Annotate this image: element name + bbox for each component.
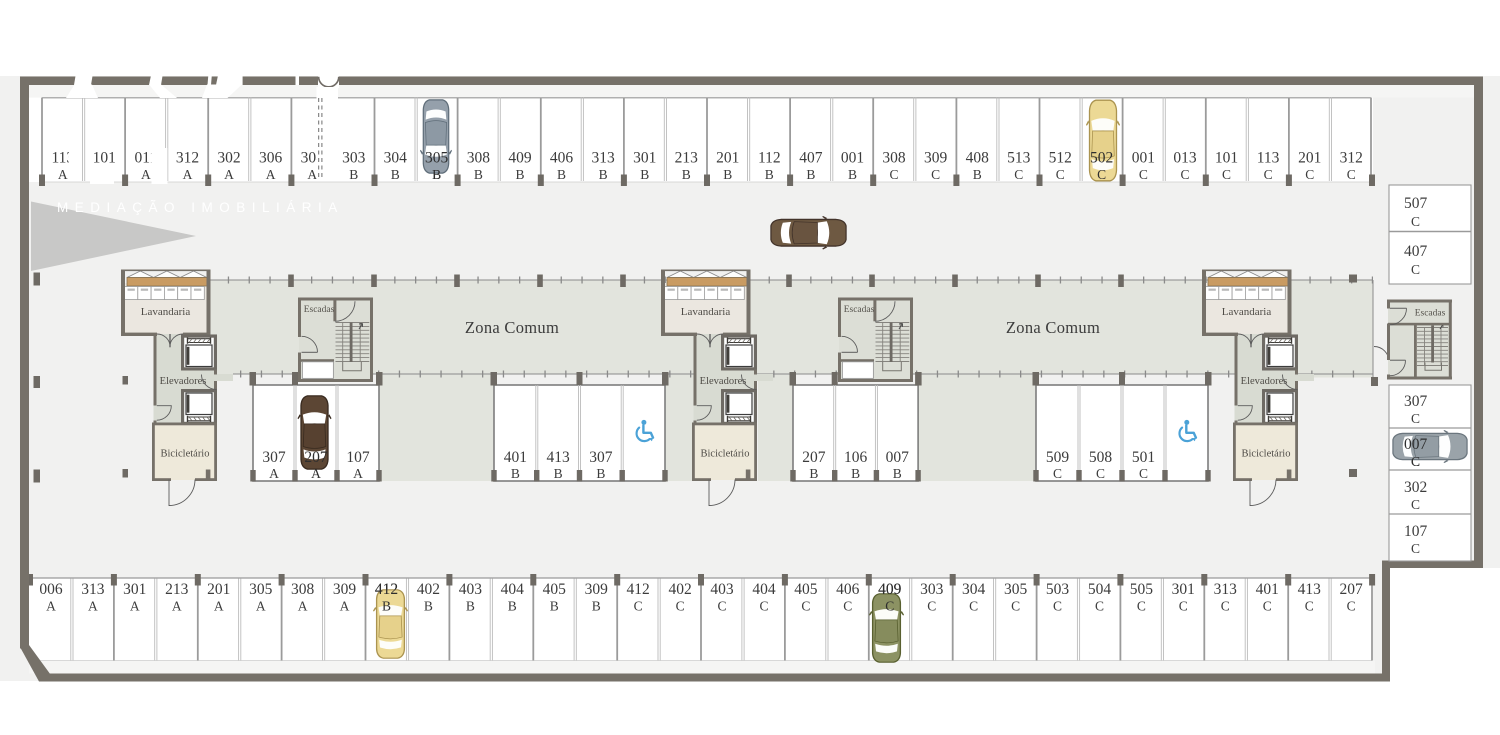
svg-text:Lavandaria: Lavandaria: [141, 306, 191, 318]
svg-text:502: 502: [1090, 150, 1113, 167]
svg-text:106: 106: [844, 449, 868, 466]
svg-text:C: C: [1264, 167, 1273, 182]
svg-text:C: C: [927, 599, 936, 614]
svg-text:B: B: [592, 599, 601, 614]
svg-text:B: B: [973, 167, 982, 182]
svg-text:C: C: [759, 599, 768, 614]
svg-text:A: A: [183, 167, 193, 182]
svg-text:505: 505: [1130, 581, 1154, 598]
svg-text:Elevadores: Elevadores: [700, 376, 747, 387]
svg-text:B: B: [765, 167, 774, 182]
svg-text:C: C: [1411, 497, 1420, 512]
svg-text:C: C: [969, 599, 978, 614]
svg-text:305: 305: [425, 150, 449, 167]
svg-text:509: 509: [1046, 449, 1070, 466]
svg-text:A: A: [311, 466, 321, 481]
svg-text:B: B: [809, 466, 818, 481]
svg-text:A: A: [130, 599, 140, 614]
svg-text:302: 302: [217, 150, 240, 167]
svg-text:308: 308: [467, 150, 491, 167]
svg-text:201: 201: [1298, 150, 1321, 167]
svg-text:301: 301: [633, 150, 656, 167]
svg-text:309: 309: [333, 581, 357, 598]
svg-text:101: 101: [93, 150, 116, 167]
svg-text:C: C: [634, 599, 643, 614]
svg-text:403: 403: [459, 581, 483, 598]
svg-text:213: 213: [165, 581, 189, 598]
svg-text:C: C: [717, 599, 726, 614]
svg-text:501: 501: [1132, 449, 1155, 466]
svg-text:B: B: [848, 167, 857, 182]
svg-text:B: B: [596, 466, 605, 481]
svg-text:B: B: [554, 466, 563, 481]
svg-text:Bicicletário: Bicicletário: [701, 449, 750, 460]
svg-text:C: C: [1053, 466, 1062, 481]
svg-text:406: 406: [836, 581, 860, 598]
svg-text:207: 207: [802, 449, 826, 466]
svg-text:513: 513: [1007, 150, 1031, 167]
svg-text:C: C: [1056, 167, 1065, 182]
svg-text:309: 309: [585, 581, 609, 598]
svg-text:B: B: [511, 466, 520, 481]
svg-text:C: C: [1011, 599, 1020, 614]
svg-text:401: 401: [504, 449, 527, 466]
svg-text:007: 007: [886, 449, 910, 466]
svg-text:C: C: [1053, 599, 1062, 614]
svg-text:B: B: [349, 167, 358, 182]
svg-text:303: 303: [342, 150, 366, 167]
svg-text:C: C: [1305, 167, 1314, 182]
svg-text:307: 307: [1404, 393, 1428, 410]
svg-text:B: B: [515, 167, 524, 182]
svg-text:C: C: [1139, 466, 1148, 481]
svg-text:MEDIAÇÃO IMOBILIÁRIA: MEDIAÇÃO IMOBILIÁRIA: [57, 200, 344, 215]
svg-text:C: C: [1014, 167, 1023, 182]
svg-text:Bicicletário: Bicicletário: [161, 449, 210, 460]
svg-text:402: 402: [668, 581, 691, 598]
svg-text:C: C: [1411, 411, 1420, 426]
svg-text:Escadas: Escadas: [844, 305, 875, 315]
svg-text:A: A: [141, 167, 151, 182]
svg-text:C: C: [1222, 167, 1231, 182]
svg-text:313: 313: [591, 150, 615, 167]
svg-text:C: C: [1347, 599, 1356, 614]
svg-text:412: 412: [375, 581, 398, 598]
svg-text:B: B: [382, 599, 391, 614]
svg-text:112: 112: [758, 150, 781, 167]
svg-text:107: 107: [1404, 523, 1428, 540]
svg-text:C: C: [1095, 599, 1104, 614]
svg-text:401: 401: [1256, 581, 1279, 598]
svg-text:001: 001: [841, 150, 864, 167]
svg-text:508: 508: [1089, 449, 1113, 466]
svg-text:C: C: [885, 599, 894, 614]
svg-text:313: 313: [1214, 581, 1238, 598]
svg-text:C: C: [1179, 599, 1188, 614]
svg-text:306: 306: [259, 150, 283, 167]
svg-text:B: B: [640, 167, 649, 182]
svg-text:409: 409: [508, 150, 532, 167]
svg-text:C: C: [1221, 599, 1230, 614]
svg-text:412: 412: [626, 581, 649, 598]
svg-text:A: A: [88, 599, 98, 614]
svg-text:C: C: [1305, 599, 1314, 614]
svg-text:007: 007: [1404, 436, 1428, 453]
svg-text:C: C: [931, 167, 940, 182]
svg-text:A: A: [46, 599, 56, 614]
svg-text:A: A: [298, 599, 308, 614]
svg-text:309: 309: [924, 150, 948, 167]
svg-text:Escadas: Escadas: [304, 305, 335, 315]
svg-text:A: A: [256, 599, 266, 614]
svg-text:403: 403: [710, 581, 734, 598]
svg-text:C: C: [1411, 454, 1420, 469]
svg-text:013: 013: [1173, 150, 1197, 167]
svg-text:101: 101: [1215, 150, 1238, 167]
svg-text:B: B: [508, 599, 517, 614]
svg-text:C: C: [1347, 167, 1356, 182]
svg-text:A: A: [214, 599, 224, 614]
svg-text:Zona Comum: Zona Comum: [465, 318, 559, 337]
svg-text:308: 308: [882, 150, 906, 167]
svg-text:C: C: [1139, 167, 1148, 182]
svg-text:C: C: [889, 167, 898, 182]
svg-text:C: C: [843, 599, 852, 614]
svg-text:307: 307: [262, 449, 286, 466]
svg-text:B: B: [432, 167, 441, 182]
svg-text:201: 201: [716, 150, 739, 167]
svg-text:107: 107: [346, 449, 370, 466]
svg-text:B: B: [893, 466, 902, 481]
svg-text:C: C: [676, 599, 685, 614]
svg-text:313: 313: [81, 581, 105, 598]
svg-text:305: 305: [1004, 581, 1028, 598]
svg-text:Lavandaria: Lavandaria: [1222, 306, 1272, 318]
svg-text:302: 302: [1404, 479, 1427, 496]
svg-text:304: 304: [962, 581, 986, 598]
svg-text:113: 113: [1257, 150, 1280, 167]
svg-text:404: 404: [501, 581, 525, 598]
svg-text:303: 303: [920, 581, 944, 598]
svg-text:Elevadores: Elevadores: [160, 376, 207, 387]
svg-text:C: C: [1411, 262, 1420, 277]
svg-text:C: C: [1411, 214, 1420, 229]
svg-text:B: B: [557, 167, 566, 182]
svg-text:503: 503: [1046, 581, 1070, 598]
svg-text:B: B: [806, 167, 815, 182]
svg-text:406: 406: [550, 150, 574, 167]
svg-text:207: 207: [1339, 581, 1363, 598]
svg-text:C: C: [1263, 599, 1272, 614]
svg-text:512: 512: [1049, 150, 1072, 167]
svg-text:A: A: [58, 167, 68, 182]
svg-text:Escadas: Escadas: [1415, 309, 1446, 319]
svg-text:C: C: [1411, 541, 1420, 556]
svg-text:A: A: [353, 466, 363, 481]
svg-text:312: 312: [176, 150, 199, 167]
svg-text:409: 409: [878, 581, 902, 598]
svg-text:B: B: [466, 599, 475, 614]
svg-text:301: 301: [123, 581, 146, 598]
svg-text:B: B: [391, 167, 400, 182]
svg-text:A: A: [307, 167, 317, 182]
svg-text:C: C: [801, 599, 810, 614]
svg-text:413: 413: [546, 449, 570, 466]
svg-text:B: B: [851, 466, 860, 481]
svg-text:312: 312: [1340, 150, 1363, 167]
svg-text:308: 308: [291, 581, 315, 598]
svg-text:Lavandaria: Lavandaria: [681, 306, 731, 318]
svg-text:B: B: [424, 599, 433, 614]
svg-text:Bicicletário: Bicicletário: [1242, 449, 1291, 460]
svg-text:305: 305: [249, 581, 273, 598]
svg-text:B: B: [682, 167, 691, 182]
svg-text:001: 001: [1132, 150, 1155, 167]
svg-text:301: 301: [1172, 581, 1195, 598]
svg-text:207: 207: [304, 449, 328, 466]
svg-text:404: 404: [752, 581, 776, 598]
svg-text:A: A: [340, 599, 350, 614]
svg-text:C: C: [1137, 599, 1146, 614]
svg-text:507: 507: [1404, 195, 1428, 212]
svg-text:006: 006: [39, 581, 63, 598]
svg-text:A: A: [269, 466, 279, 481]
svg-text:A: A: [224, 167, 234, 182]
svg-text:201: 201: [207, 581, 230, 598]
svg-text:304: 304: [384, 150, 408, 167]
svg-text:307: 307: [589, 449, 613, 466]
svg-text:B: B: [599, 167, 608, 182]
svg-text:B: B: [550, 599, 559, 614]
svg-text:407: 407: [1404, 243, 1428, 260]
svg-text:407: 407: [799, 150, 823, 167]
svg-text:408: 408: [966, 150, 990, 167]
svg-text:405: 405: [543, 581, 567, 598]
svg-text:405: 405: [794, 581, 818, 598]
svg-text:413: 413: [1298, 581, 1322, 598]
svg-text:504: 504: [1088, 581, 1112, 598]
svg-text:213: 213: [675, 150, 699, 167]
svg-text:B: B: [723, 167, 732, 182]
svg-text:Elevadores: Elevadores: [1241, 376, 1288, 387]
svg-text:C: C: [1097, 167, 1106, 182]
svg-text:A: A: [266, 167, 276, 182]
svg-text:C: C: [1096, 466, 1105, 481]
svg-text:Zona Comum: Zona Comum: [1006, 318, 1100, 337]
svg-text:B: B: [474, 167, 483, 182]
svg-text:A: A: [172, 599, 182, 614]
svg-text:402: 402: [417, 581, 440, 598]
svg-text:C: C: [1180, 167, 1189, 182]
